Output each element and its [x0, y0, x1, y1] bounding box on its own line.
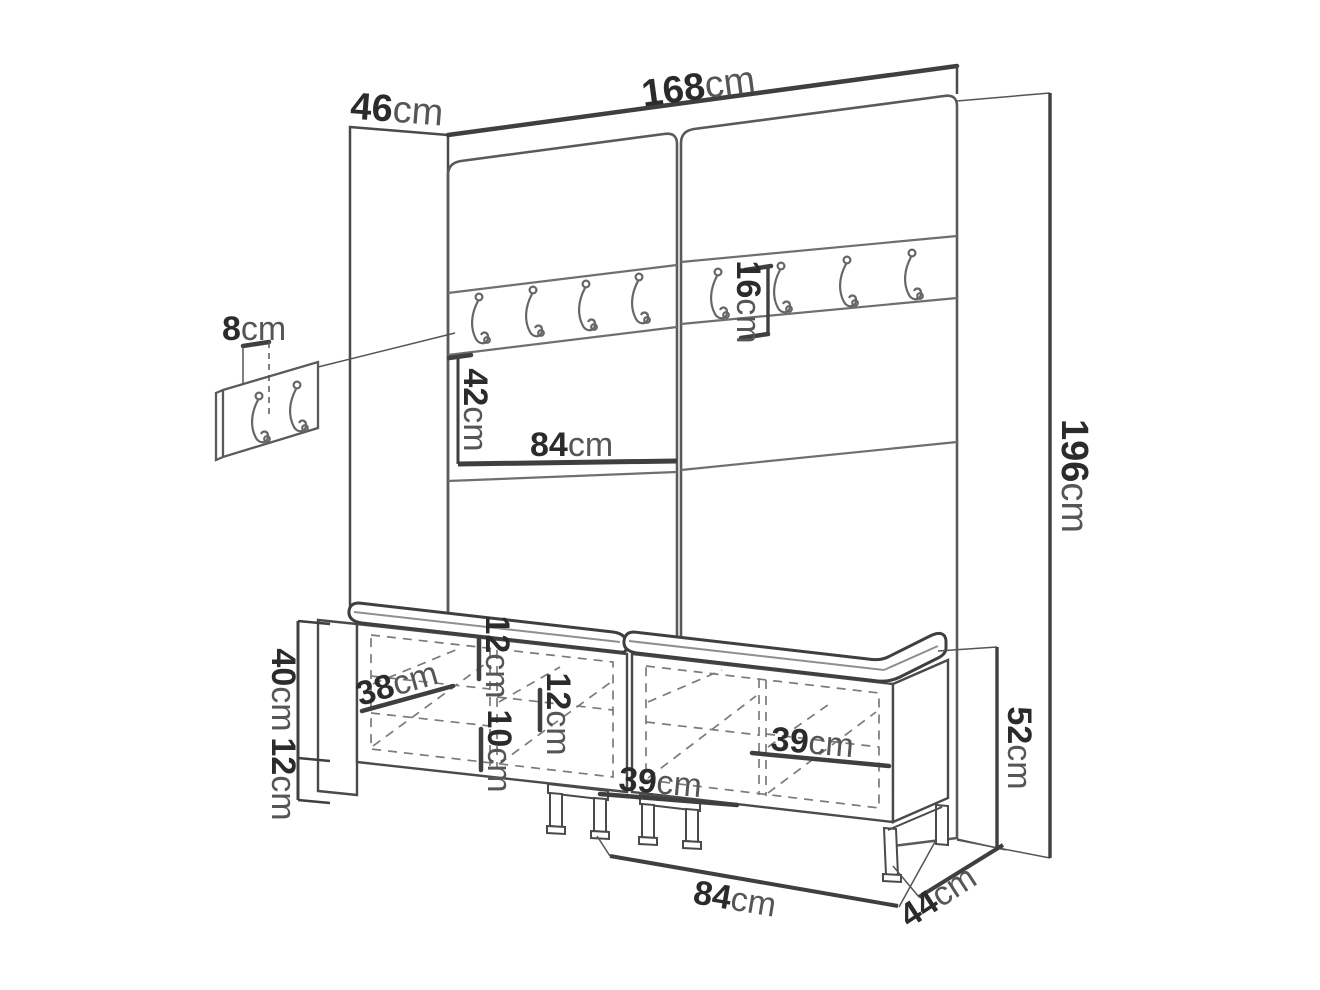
- dim-84-mid-label: 84cm: [530, 426, 613, 464]
- dim-44-label: 44cm: [893, 858, 983, 935]
- dim-196-extension-top: [957, 93, 1050, 101]
- dim-16-label: 16cm: [729, 260, 767, 343]
- bench-left-side-board: [318, 620, 357, 795]
- dim-42-label: 42cm: [456, 368, 494, 451]
- dim-12b-label: 12cm: [539, 672, 577, 755]
- dim-12-leg-label: 12cm: [264, 737, 302, 820]
- dim-196-label: 196cm: [1053, 419, 1095, 533]
- furniture-dimension-diagram: 168cm 46cm 196cm 8cm 16cm 42cm 84cm 40cm…: [0, 0, 1320, 990]
- diagram-canvas: 168cm 46cm 196cm 8cm 16cm 42cm 84cm 40cm…: [0, 0, 1320, 990]
- panel-side-face: [350, 127, 448, 618]
- dim-8-label: 8cm: [222, 310, 286, 348]
- dim-10-label: 10cm: [480, 709, 518, 792]
- dim-52-label: 52cm: [1000, 706, 1038, 789]
- dim-12a-label: 12cm: [478, 615, 516, 698]
- shoe-bench-left: [318, 603, 627, 839]
- dim-46-label: 46cm: [349, 85, 445, 134]
- dim-39b-label: 39cm: [769, 720, 855, 765]
- bench-right-side-face: [893, 660, 948, 822]
- dim-40-label: 40cm: [264, 648, 302, 731]
- dim-39a-label: 39cm: [617, 760, 703, 805]
- dim-42-tick: [449, 355, 471, 358]
